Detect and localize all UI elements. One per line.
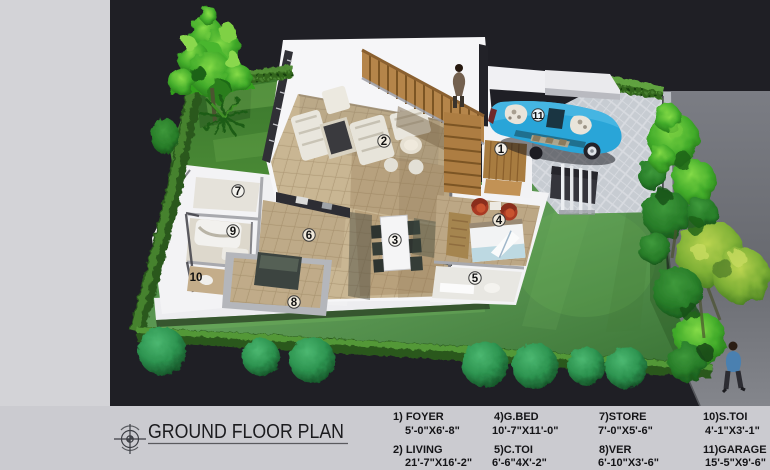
svg-text:15'-5"X9'-6": 15'-5"X9'-6" — [705, 457, 766, 469]
svg-text:10)S.TOI: 10)S.TOI — [703, 411, 747, 423]
svg-text:4: 4 — [496, 215, 503, 227]
svg-text:1: 1 — [498, 144, 505, 156]
svg-text:10'-7"X11'-0": 10'-7"X11'-0" — [492, 425, 558, 437]
svg-text:8)VER: 8)VER — [599, 444, 631, 456]
svg-text:8: 8 — [291, 297, 298, 309]
svg-text:7: 7 — [235, 186, 241, 198]
svg-text:5)C.TOI: 5)C.TOI — [494, 444, 533, 456]
svg-text:1) FOYER: 1) FOYER — [393, 411, 444, 423]
svg-text:2: 2 — [381, 136, 387, 148]
svg-text:10: 10 — [190, 272, 203, 284]
svg-text:7)STORE: 7)STORE — [599, 411, 646, 423]
svg-text:21'-7"X16'-2": 21'-7"X16'-2" — [405, 457, 472, 469]
svg-text:6'-10"X3'-6": 6'-10"X3'-6" — [598, 457, 659, 469]
svg-text:5'-0"X6'-8": 5'-0"X6'-8" — [405, 425, 460, 437]
svg-text:GROUND FLOOR PLAN: GROUND FLOOR PLAN — [148, 421, 344, 443]
svg-text:4'-1"X3'-1": 4'-1"X3'-1" — [705, 425, 760, 437]
svg-text:6: 6 — [306, 230, 312, 242]
svg-text:11: 11 — [532, 110, 543, 122]
svg-text:4)G.BED: 4)G.BED — [494, 411, 539, 423]
svg-text:2) LIVING: 2) LIVING — [393, 444, 443, 456]
svg-text:3: 3 — [392, 235, 398, 247]
svg-text:11)GARAGE: 11)GARAGE — [703, 444, 767, 456]
svg-text:6'-6"4X'-2": 6'-6"4X'-2" — [492, 457, 547, 469]
svg-text:7'-0"X5'-6": 7'-0"X5'-6" — [598, 425, 653, 437]
svg-text:9: 9 — [230, 226, 236, 238]
svg-text:5: 5 — [472, 273, 479, 285]
